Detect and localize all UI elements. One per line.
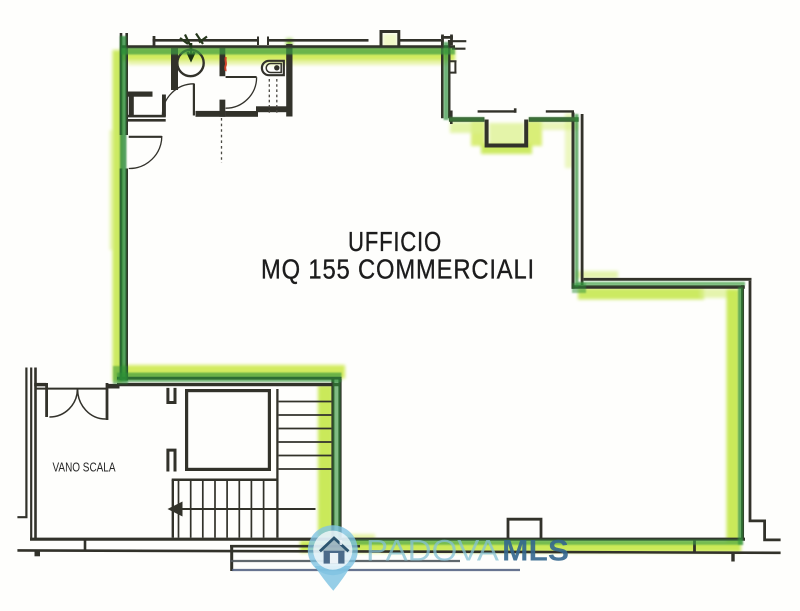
svg-text:PADOVA: PADOVA xyxy=(366,535,499,568)
svg-text:MQ 155 COMMERCIALI: MQ 155 COMMERCIALI xyxy=(261,254,535,285)
svg-text:MLS: MLS xyxy=(502,535,569,568)
svg-text:VANO SCALA: VANO SCALA xyxy=(53,460,116,475)
svg-text:UFFICIO: UFFICIO xyxy=(348,226,442,257)
